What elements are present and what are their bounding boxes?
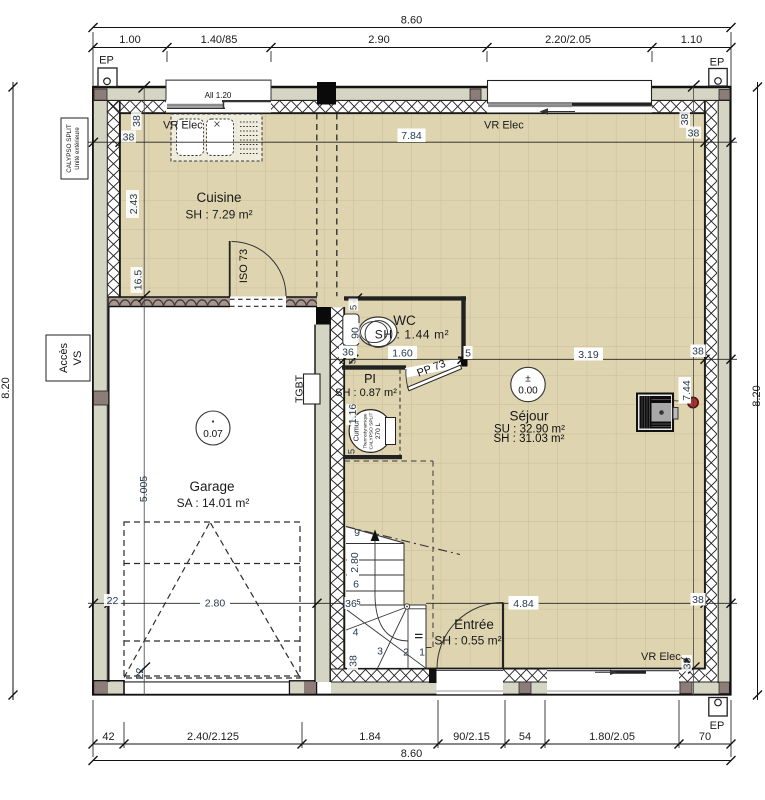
svg-text:1: 1 — [419, 647, 425, 659]
svg-text:16.5: 16.5 — [133, 270, 145, 291]
svg-text:2.80: 2.80 — [205, 598, 226, 610]
svg-text:5: 5 — [347, 449, 358, 454]
svg-text:5: 5 — [356, 598, 360, 607]
svg-text:8.20: 8.20 — [0, 377, 12, 398]
svg-text:3: 3 — [377, 646, 383, 658]
svg-text:SA : 14.01 m²: SA : 14.01 m² — [177, 496, 250, 510]
svg-text:1.16: 1.16 — [347, 404, 359, 425]
svg-text:0.07: 0.07 — [203, 429, 223, 440]
svg-text:6: 6 — [353, 579, 359, 591]
svg-text:42: 42 — [102, 731, 114, 743]
svg-text:22: 22 — [134, 668, 146, 680]
svg-text:1.40/85: 1.40/85 — [201, 34, 238, 46]
svg-text:WC: WC — [393, 313, 416, 328]
svg-text:Entrée: Entrée — [454, 617, 494, 632]
svg-text:9: 9 — [354, 527, 360, 539]
svg-text:CALYPSO SPLIT: CALYPSO SPLIT — [369, 412, 375, 449]
svg-text:7.84: 7.84 — [401, 130, 422, 142]
svg-text:38: 38 — [692, 594, 704, 606]
svg-text:8.60: 8.60 — [401, 15, 422, 27]
svg-text:5: 5 — [465, 348, 471, 360]
svg-text:SH : 0.87 m²: SH : 0.87 m² — [335, 387, 397, 399]
svg-text:1.10: 1.10 — [681, 34, 702, 46]
svg-text:2.43: 2.43 — [128, 194, 140, 215]
svg-text:0.00: 0.00 — [518, 386, 538, 397]
svg-text:38: 38 — [123, 132, 135, 144]
svg-text:2.80: 2.80 — [349, 552, 361, 573]
svg-text:SH : 1.44 m²: SH : 1.44 m² — [375, 328, 450, 342]
svg-text:1.60: 1.60 — [392, 348, 413, 360]
svg-text:VR Elec: VR Elec — [641, 651, 681, 663]
svg-text:Thermodynamique: Thermodynamique — [363, 413, 368, 449]
svg-text:VR Elec: VR Elec — [163, 120, 203, 132]
svg-text:5.005: 5.005 — [138, 476, 150, 502]
svg-text:54: 54 — [519, 731, 531, 743]
svg-text:8.60: 8.60 — [401, 748, 422, 760]
svg-text:4: 4 — [353, 627, 359, 639]
svg-text:3.19: 3.19 — [578, 349, 599, 361]
svg-text:36: 36 — [342, 347, 354, 359]
svg-text:7.44: 7.44 — [681, 380, 693, 401]
svg-text:2.40/2.125: 2.40/2.125 — [187, 731, 239, 743]
svg-text:1.80/2.05: 1.80/2.05 — [589, 731, 635, 743]
svg-text:SH : 7.29 m²: SH : 7.29 m² — [185, 208, 252, 222]
svg-text:Cuisine: Cuisine — [196, 190, 241, 205]
svg-text:1.00: 1.00 — [119, 34, 140, 46]
svg-text:38: 38 — [131, 115, 143, 127]
svg-text:38: 38 — [679, 114, 691, 126]
svg-text:5: 5 — [349, 305, 360, 310]
svg-text:Séjour: Séjour — [509, 409, 549, 424]
svg-text:2.90: 2.90 — [368, 34, 389, 46]
svg-text:2.20/2.05: 2.20/2.05 — [545, 34, 591, 46]
svg-text:5: 5 — [348, 359, 359, 364]
svg-text:EP: EP — [710, 57, 725, 69]
svg-text:22: 22 — [107, 595, 119, 607]
svg-text:SH : 0.55 m²: SH : 0.55 m² — [434, 634, 501, 648]
svg-text:VR Elec: VR Elec — [484, 120, 524, 132]
svg-text:90: 90 — [350, 327, 362, 339]
svg-text:SH : 31.03 m²: SH : 31.03 m² — [494, 433, 565, 445]
svg-text:38: 38 — [688, 128, 700, 140]
svg-text:Unité extérieure: Unité extérieure — [75, 127, 81, 170]
svg-text:EP: EP — [710, 720, 725, 732]
svg-text:90/2.15: 90/2.15 — [453, 731, 490, 743]
svg-text:Accès: Accès — [58, 343, 70, 373]
svg-text:36: 36 — [345, 598, 357, 610]
svg-text:4.84: 4.84 — [513, 598, 534, 610]
svg-text:PI: PI — [364, 372, 376, 386]
svg-text:EP: EP — [99, 55, 114, 67]
svg-text:38: 38 — [348, 655, 360, 667]
svg-text:8.20: 8.20 — [751, 385, 763, 406]
svg-text:70: 70 — [699, 731, 711, 743]
svg-text:ISO 73: ISO 73 — [238, 249, 250, 283]
svg-text:2: 2 — [403, 647, 409, 659]
svg-text:270 L: 270 L — [375, 422, 382, 439]
svg-text:CALYPSO SPLIT: CALYPSO SPLIT — [66, 124, 73, 173]
svg-text:Garage: Garage — [189, 479, 234, 494]
svg-text:±: ± — [525, 374, 531, 385]
svg-text:All 1.20: All 1.20 — [205, 91, 232, 100]
svg-text:38: 38 — [692, 346, 704, 358]
svg-text:1.84: 1.84 — [359, 731, 380, 743]
svg-text:TGBT: TGBT — [294, 374, 306, 403]
svg-text:VS: VS — [72, 351, 84, 366]
